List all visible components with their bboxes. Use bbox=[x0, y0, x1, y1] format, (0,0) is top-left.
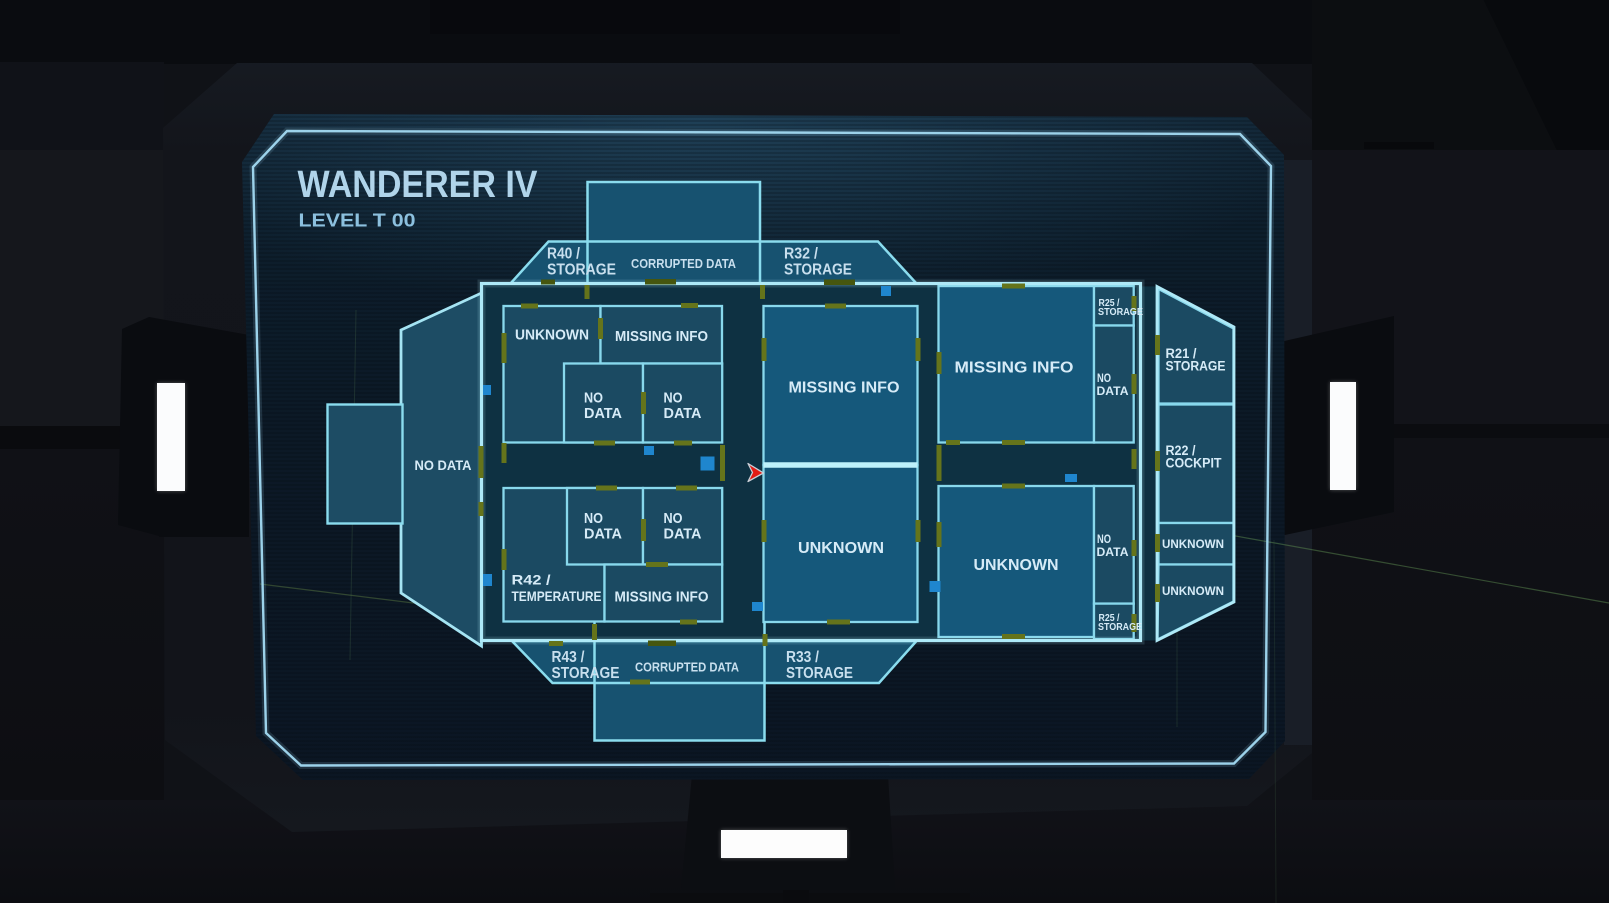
svg-text:MISSING INFO: MISSING INFO bbox=[955, 360, 1074, 377]
svg-text:STORAGE: STORAGE bbox=[547, 262, 616, 279]
svg-text:TEMPERATURE: TEMPERATURE bbox=[512, 588, 602, 604]
svg-text:UNKNOWN: UNKNOWN bbox=[515, 327, 589, 344]
svg-text:MISSING INFO: MISSING INFO bbox=[615, 328, 708, 345]
svg-text:MISSING INFO: MISSING INFO bbox=[615, 589, 709, 606]
svg-text:CORRUPTED DATA: CORRUPTED DATA bbox=[631, 256, 737, 271]
svg-text:NO DATA: NO DATA bbox=[415, 457, 472, 473]
svg-text:COCKPIT: COCKPIT bbox=[1166, 456, 1223, 471]
svg-text:STORAGE: STORAGE bbox=[552, 665, 620, 682]
svg-text:STORAGE: STORAGE bbox=[786, 665, 853, 682]
svg-text:DATA: DATA bbox=[584, 526, 622, 543]
svg-text:R43 /: R43 / bbox=[552, 649, 585, 666]
svg-text:WANDERER IV: WANDERER IV bbox=[298, 164, 539, 206]
svg-text:DATA: DATA bbox=[1097, 545, 1129, 559]
svg-text:NO: NO bbox=[1097, 532, 1111, 546]
svg-text:STORAGE: STORAGE bbox=[784, 262, 852, 279]
svg-text:NO: NO bbox=[584, 390, 603, 407]
svg-text:DATA: DATA bbox=[664, 405, 702, 422]
svg-text:NO: NO bbox=[584, 510, 603, 527]
svg-text:UNKNOWN: UNKNOWN bbox=[798, 540, 884, 557]
svg-text:UNKNOWN: UNKNOWN bbox=[974, 557, 1059, 574]
svg-text:STORAGE: STORAGE bbox=[1166, 359, 1226, 374]
svg-text:R40 /: R40 / bbox=[547, 246, 580, 263]
svg-text:DATA: DATA bbox=[584, 405, 622, 422]
svg-text:DATA: DATA bbox=[664, 526, 702, 543]
svg-text:CORRUPTED DATA: CORRUPTED DATA bbox=[635, 660, 740, 675]
svg-text:STORAGE: STORAGE bbox=[1098, 307, 1143, 318]
svg-text:R42 /: R42 / bbox=[512, 572, 551, 588]
svg-text:NO: NO bbox=[1097, 371, 1111, 385]
svg-text:MISSING INFO: MISSING INFO bbox=[789, 380, 900, 397]
svg-text:UNKNOWN: UNKNOWN bbox=[1162, 537, 1224, 551]
svg-text:UNKNOWN: UNKNOWN bbox=[1162, 584, 1224, 598]
svg-text:R33 /: R33 / bbox=[786, 649, 819, 666]
svg-text:R32 /: R32 / bbox=[784, 246, 818, 263]
svg-text:STORAGE: STORAGE bbox=[1098, 622, 1142, 633]
svg-text:LEVEL T 00: LEVEL T 00 bbox=[299, 210, 416, 231]
svg-text:NO: NO bbox=[664, 390, 683, 407]
svg-text:NO: NO bbox=[664, 510, 683, 527]
svg-text:DATA: DATA bbox=[1097, 384, 1129, 398]
